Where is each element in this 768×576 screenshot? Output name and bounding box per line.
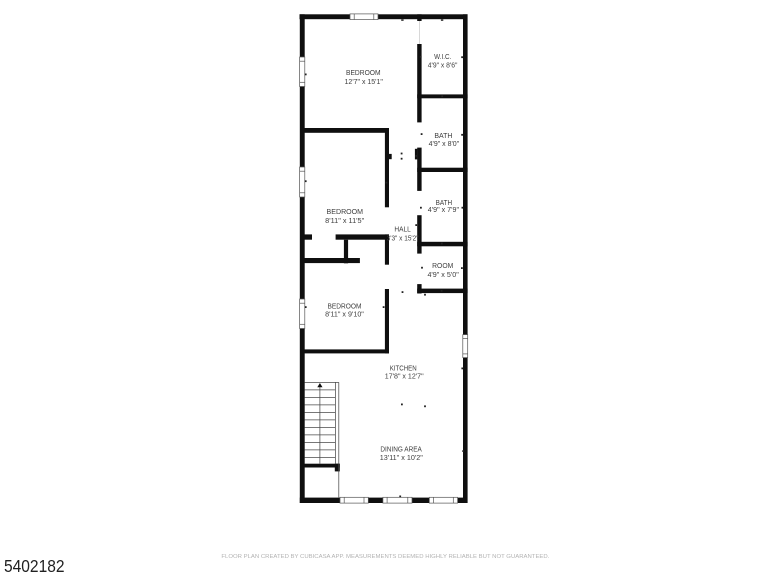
svg-text:4'9" x 5'0": 4'9" x 5'0": [427, 270, 459, 279]
svg-text:4'9" x 7'9": 4'9" x 7'9": [428, 205, 460, 214]
svg-text:5402182: 5402182: [4, 556, 65, 576]
svg-text:3'3" x 15'2": 3'3" x 15'2": [387, 233, 419, 242]
svg-text:4'9" x 8'6": 4'9" x 8'6": [428, 60, 458, 69]
svg-text:FLOOR PLAN CREATED BY CUBICASA: FLOOR PLAN CREATED BY CUBICASA APP. MEAS…: [221, 554, 549, 560]
svg-text:8'11" x 11'5": 8'11" x 11'5": [325, 216, 364, 225]
svg-text:BEDROOM: BEDROOM: [346, 68, 381, 77]
svg-text:13'11" x 10'2": 13'11" x 10'2": [380, 453, 423, 462]
svg-text:17'8" x 12'7": 17'8" x 12'7": [385, 372, 424, 381]
svg-text:12'7" x 15'1": 12'7" x 15'1": [345, 77, 384, 86]
svg-text:BEDROOM: BEDROOM: [327, 207, 364, 216]
svg-text:8'11" x 9'10": 8'11" x 9'10": [325, 310, 364, 319]
svg-text:4'9" x 8'0": 4'9" x 8'0": [429, 139, 460, 148]
